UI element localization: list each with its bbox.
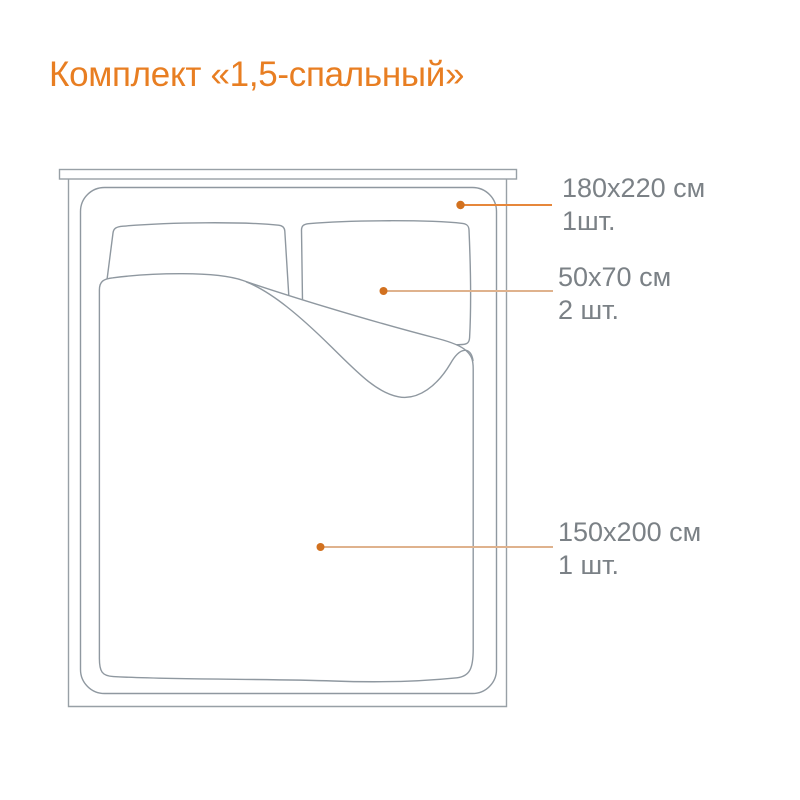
callout-label-duvet-cover: 150x200 см 1 шт. xyxy=(558,516,701,582)
callout-dot-icon-duvet-cover xyxy=(317,543,325,551)
callout-dot-icon-sheet xyxy=(456,201,464,209)
duvet xyxy=(99,274,473,682)
callout-dot-icon-pillowcase xyxy=(380,287,388,295)
callout-label-sheet: 180x220 см 1шт. xyxy=(562,172,705,238)
callout-qty: 1 шт. xyxy=(558,549,701,582)
callout-qty: 1шт. xyxy=(562,205,705,238)
callout-size: 180x220 см xyxy=(562,172,705,205)
bed-set-diagram xyxy=(0,0,800,800)
callout-label-pillowcase: 50x70 см 2 шт. xyxy=(558,261,671,327)
callout-size: 150x200 см xyxy=(558,516,701,549)
callout-size: 50x70 см xyxy=(558,261,671,294)
headboard xyxy=(60,170,517,180)
callout-qty: 2 шт. xyxy=(558,294,671,327)
infographic-page: Комплект «1,5-спальный» xyxy=(0,0,800,800)
